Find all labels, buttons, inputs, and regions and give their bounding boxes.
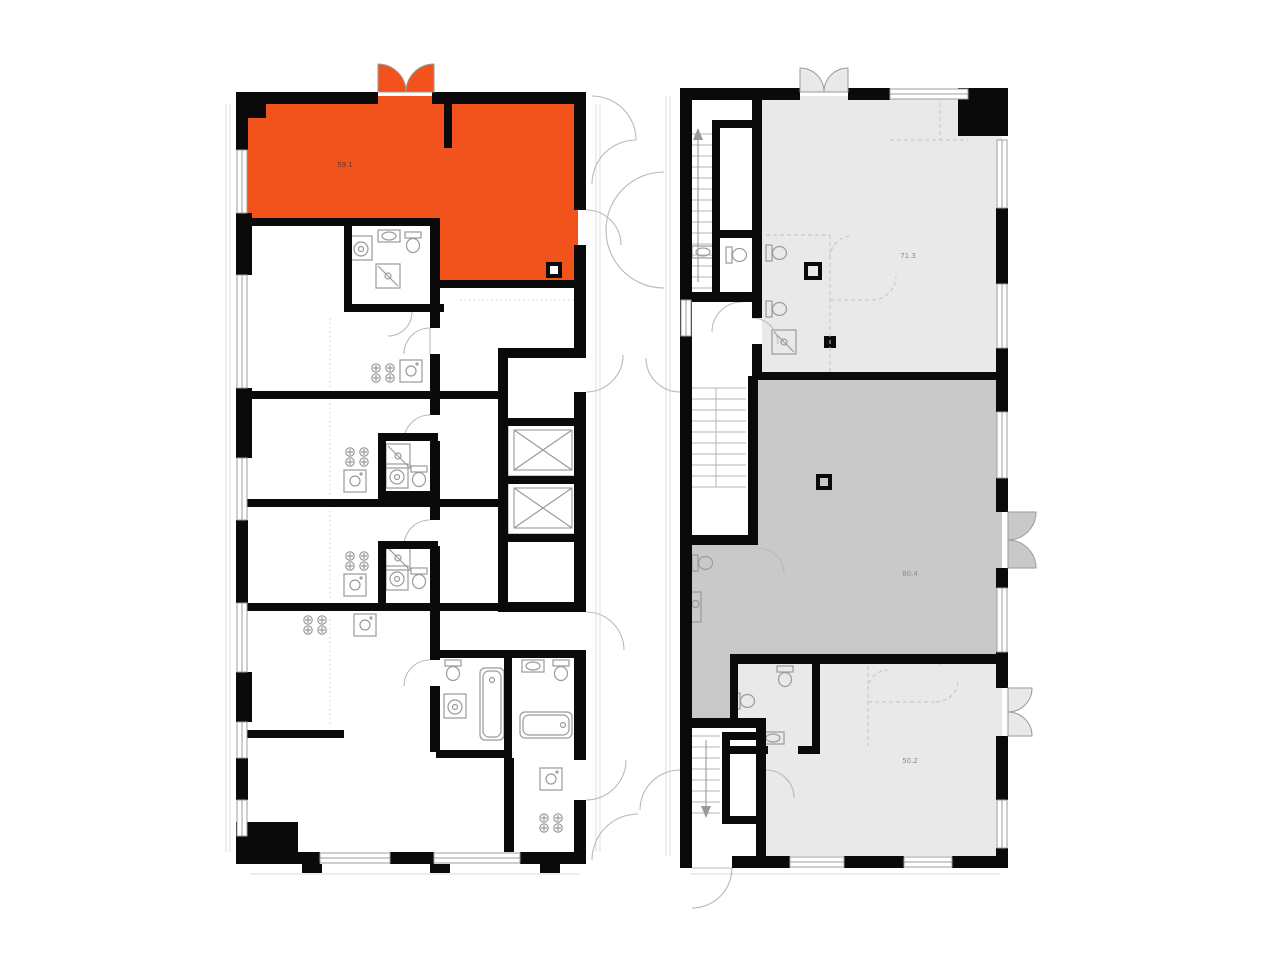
unit-selected-highlight[interactable] — [244, 96, 578, 284]
washer-icon — [444, 694, 466, 718]
bathtub-icon — [480, 668, 504, 740]
shower-icon — [376, 264, 400, 288]
bathtub-icon — [520, 712, 572, 738]
unit-bottom-right[interactable] — [730, 660, 1002, 856]
middle-unit-balcony-door[interactable] — [1008, 540, 1036, 568]
elevator-shaft-2-icon — [508, 482, 578, 534]
kitchen-sink-icon — [400, 360, 422, 382]
bottom-unit-balcony-door[interactable] — [1008, 688, 1032, 712]
toilet-icon — [411, 466, 427, 487]
duct-box-orange-unit-icon — [546, 262, 562, 278]
sink-icon — [378, 230, 400, 242]
selected-unit-entry-door[interactable] — [378, 64, 406, 92]
toilet-icon — [411, 568, 427, 589]
stove-icon — [540, 814, 562, 832]
floor-plan-svg: 59.1 71.3 80.4 50.2 — [0, 0, 1280, 960]
bottom-right-unit-area-label: 50.2 — [902, 757, 918, 765]
stairs-down-arrow-icon — [701, 806, 711, 818]
bottom-unit-balcony-door[interactable] — [1008, 712, 1032, 736]
kitchen-sink-icon — [344, 574, 366, 596]
elevator-shaft-1-icon — [508, 424, 578, 476]
toilet-icon — [405, 232, 421, 253]
top-right-unit-area-label: 71.3 — [900, 252, 916, 260]
staircase-top-icon — [692, 128, 712, 288]
sink-icon — [522, 660, 544, 672]
middle-right-unit-area-label: 80.4 — [902, 570, 918, 578]
kitchen-sink-icon — [354, 614, 376, 636]
stove-icon — [346, 552, 368, 570]
sink-icon — [692, 246, 714, 258]
staircase-middle-icon — [686, 388, 746, 487]
stove-icon — [372, 364, 394, 382]
selected-unit-area-label: 59.1 — [337, 161, 353, 169]
selected-unit-entry-door[interactable] — [406, 64, 434, 92]
top-unit-balcony-door[interactable] — [800, 68, 824, 92]
toilet-icon — [553, 660, 569, 681]
washer-icon — [350, 236, 372, 260]
kitchen-sink-icon — [344, 470, 366, 492]
stove-icon — [304, 616, 326, 634]
duct-box-dark-unit-icon — [816, 474, 832, 490]
middle-unit-balcony-door[interactable] — [1008, 512, 1036, 540]
kitchen-sink-icon — [540, 768, 562, 790]
stove-icon — [346, 448, 368, 466]
unit-top-right[interactable] — [762, 96, 1002, 372]
toilet-icon — [726, 247, 747, 263]
toilet-icon — [445, 660, 461, 681]
staircase-bottom-icon — [692, 736, 720, 818]
floor-plan-canvas: 59.1 71.3 80.4 50.2 — [0, 0, 1280, 960]
top-unit-balcony-door[interactable] — [824, 68, 848, 92]
